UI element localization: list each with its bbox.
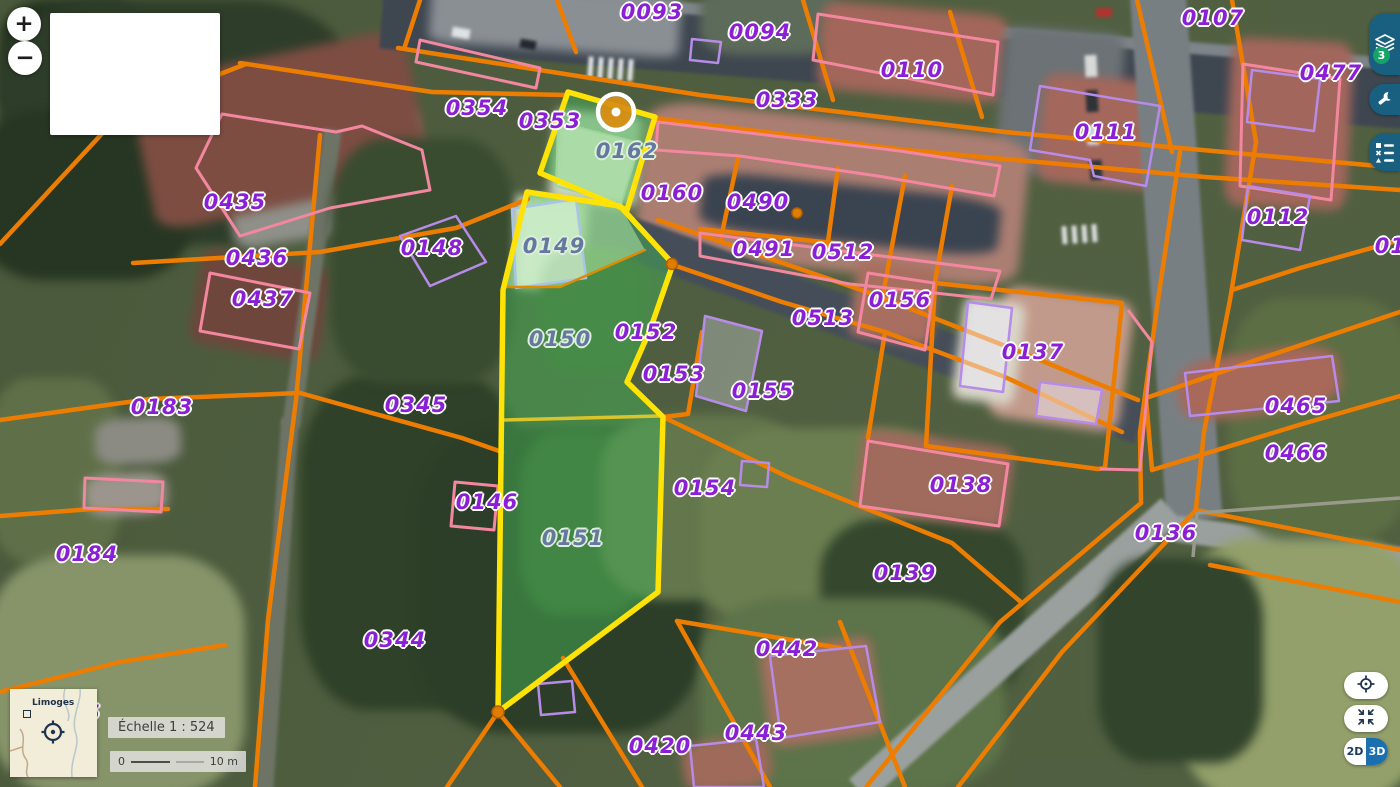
zoom-in-button[interactable]: +: [7, 7, 41, 41]
parcel-label-0110[interactable]: 0110: [881, 58, 943, 82]
parcel-label-0490[interactable]: 0490: [727, 190, 789, 214]
parcel-label-0150[interactable]: 0150: [529, 327, 591, 351]
layers-count-badge: 3: [1373, 47, 1390, 64]
parcel-label-0345[interactable]: 0345: [385, 393, 447, 417]
parcel-label-0491[interactable]: 0491: [733, 237, 795, 261]
parcel-label-0184[interactable]: 0184: [56, 542, 118, 566]
parcel-label-0107[interactable]: 0107: [1182, 6, 1244, 30]
tools-button[interactable]: [1369, 84, 1400, 115]
layers-button[interactable]: 3: [1369, 13, 1400, 75]
parcel-label-0477[interactable]: 0477: [1300, 61, 1362, 85]
parcel-label-0139[interactable]: 0139: [874, 561, 936, 585]
scale-label: Échelle 1 : 524: [108, 717, 225, 738]
info-panel[interactable]: [50, 13, 220, 135]
minimap-city-label: Limoges: [32, 698, 74, 708]
compress-arrows-icon: [1356, 707, 1376, 731]
parcel-label-0111[interactable]: 0111: [1075, 120, 1137, 144]
parcel-label-0112[interactable]: 0112: [1247, 205, 1309, 229]
parcel-label-0465[interactable]: 0465: [1265, 394, 1327, 418]
parcel-label-0443[interactable]: 0443: [725, 721, 787, 745]
parcel-label-0149[interactable]: 0149: [523, 234, 585, 258]
scale-bar-segment-light: [176, 761, 204, 763]
parcel-label-0138[interactable]: 0138: [930, 473, 992, 497]
parcel-label-0137[interactable]: 0137: [1002, 340, 1064, 364]
scale-bar-segment-dark: [131, 761, 170, 763]
parcel-label-0437[interactable]: 0437: [232, 287, 294, 311]
parcel-label-0442[interactable]: 0442: [756, 637, 818, 661]
wrench-icon: [1375, 90, 1394, 109]
parcel-label-0152[interactable]: 0152: [615, 320, 677, 344]
parcel-label-0436[interactable]: 0436: [226, 246, 288, 270]
scale-bar: 0 10 m: [110, 751, 246, 772]
parcel-label-0354[interactable]: 0354: [446, 96, 508, 120]
parcel-label-0513[interactable]: 0513: [792, 306, 854, 330]
minimap-city-marker: [23, 710, 31, 718]
parcel-label-0094[interactable]: 0094: [729, 20, 791, 44]
exit-fullscreen-button[interactable]: [1344, 705, 1388, 732]
parcel-label-0154[interactable]: 0154: [674, 476, 736, 500]
parcel-label-0420[interactable]: 0420: [629, 734, 691, 758]
geolocate-button[interactable]: [1344, 672, 1388, 699]
parcel-label-0151[interactable]: 0151: [542, 526, 604, 550]
legend-button[interactable]: [1369, 133, 1400, 171]
dimension-toggle[interactable]: 2D 3D: [1344, 738, 1388, 765]
zoom-out-button[interactable]: −: [8, 41, 42, 75]
parcel-label-0344[interactable]: 0344: [364, 628, 426, 652]
toggle-2d[interactable]: 2D: [1344, 738, 1366, 765]
parcel-label-0333[interactable]: 0333: [756, 88, 818, 112]
parcel-label-0183[interactable]: 0183: [131, 395, 193, 419]
parcel-label-0093[interactable]: 0093: [621, 0, 683, 24]
overview-minimap[interactable]: Limoges: [10, 689, 97, 777]
parcel-label-0113[interactable]: 0113: [1375, 234, 1400, 258]
scale-bar-start: 0: [118, 755, 125, 768]
minus-icon: −: [15, 45, 34, 71]
parcel-label-0353[interactable]: 0353: [519, 109, 581, 133]
parcel-label-0155[interactable]: 0155: [732, 379, 794, 403]
parcel-label-0146[interactable]: 0146: [456, 490, 518, 514]
legend-icon: [1374, 140, 1396, 164]
parcel-label-0136[interactable]: 0136: [1135, 521, 1197, 545]
parcel-label-0162[interactable]: 0162: [596, 139, 658, 163]
parcel-label-0466[interactable]: 0466: [1265, 441, 1327, 465]
parcel-label-0153[interactable]: 0153: [643, 362, 705, 386]
parcel-label-0160[interactable]: 0160: [641, 181, 703, 205]
parcel-label-0156[interactable]: 0156: [869, 288, 931, 312]
parcel-label-0148[interactable]: 0148: [401, 236, 463, 260]
map-canvas[interactable]: 0093009401070110047703330354035301110162…: [0, 0, 1400, 787]
scale-bar-end: 10 m: [210, 755, 238, 768]
parcel-label-0512[interactable]: 0512: [812, 240, 874, 264]
parcel-label-0435[interactable]: 0435: [204, 190, 266, 214]
crosshair-icon: [1356, 674, 1376, 698]
plus-icon: +: [14, 11, 33, 37]
